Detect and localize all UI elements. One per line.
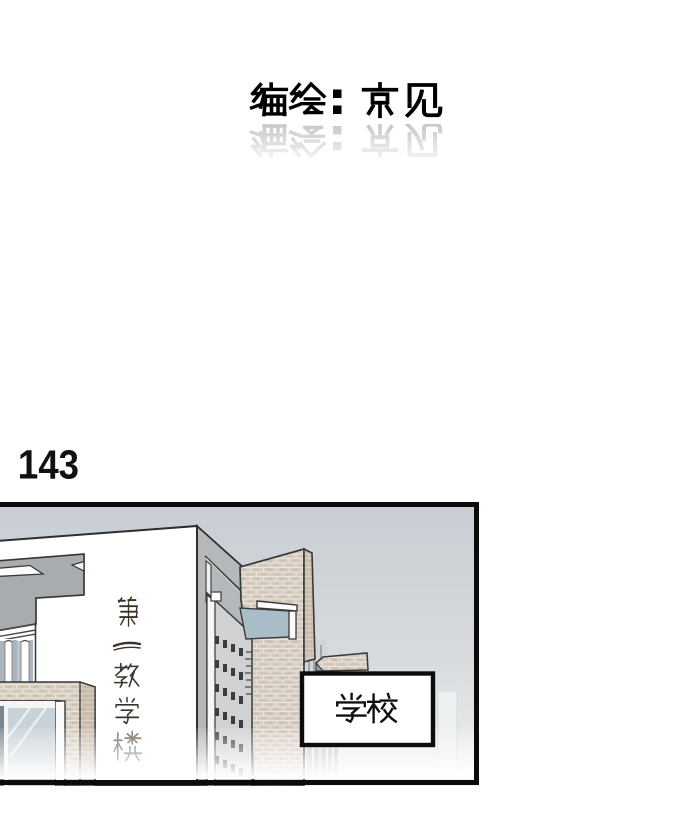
svg-text:143: 143 (18, 442, 79, 488)
